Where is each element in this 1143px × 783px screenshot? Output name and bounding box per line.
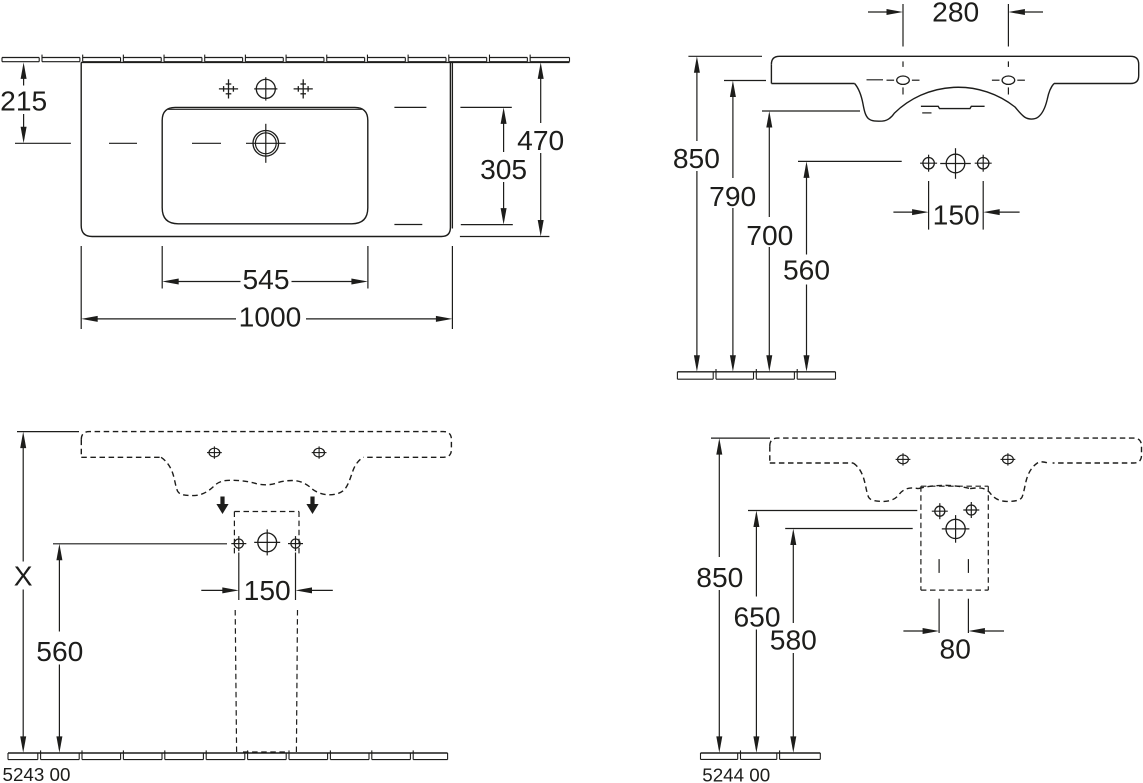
svg-text:560: 560: [36, 635, 83, 667]
svg-text:470: 470: [517, 124, 564, 156]
svg-text:80: 80: [940, 633, 971, 665]
svg-text:560: 560: [783, 253, 830, 285]
svg-text:150: 150: [244, 574, 291, 606]
svg-text:5243 00: 5243 00: [3, 764, 71, 783]
svg-text:790: 790: [709, 180, 756, 212]
svg-text:700: 700: [746, 219, 793, 251]
svg-text:1000: 1000: [239, 300, 302, 332]
svg-text:5244 00: 5244 00: [702, 765, 770, 783]
svg-text:X: X: [14, 560, 33, 592]
svg-text:850: 850: [673, 142, 720, 174]
svg-text:850: 850: [696, 561, 743, 593]
svg-text:305: 305: [480, 153, 527, 185]
svg-text:580: 580: [770, 624, 817, 656]
svg-text:215: 215: [0, 85, 47, 117]
svg-text:150: 150: [933, 199, 980, 231]
svg-text:280: 280: [932, 0, 979, 28]
svg-text:545: 545: [242, 263, 289, 295]
